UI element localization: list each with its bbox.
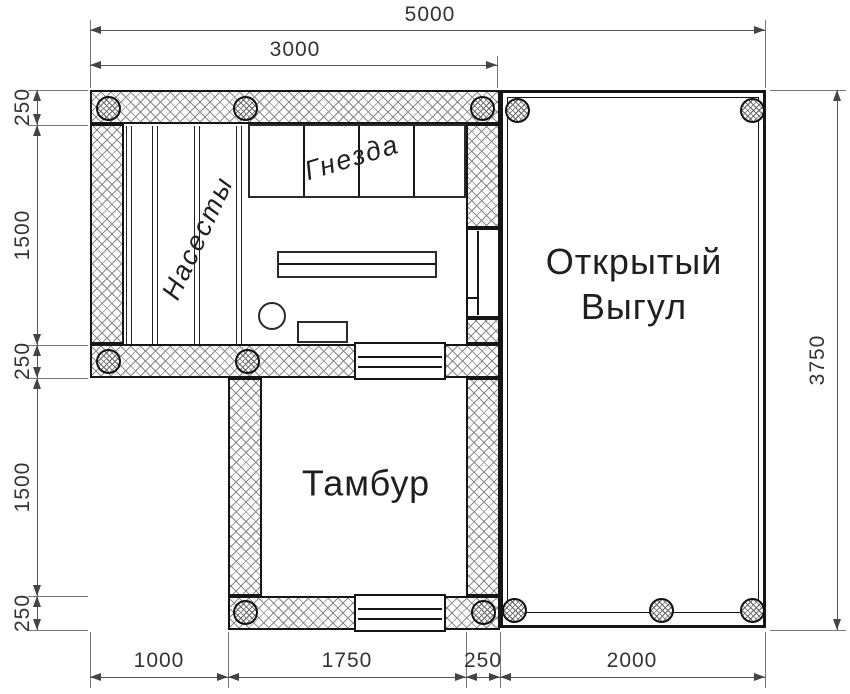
dim-label-top-total: 5000	[405, 3, 456, 27]
drinker	[258, 302, 286, 330]
perch-rail	[236, 126, 242, 344]
vestibule-right-wall	[466, 378, 500, 596]
perch-rail	[126, 126, 132, 344]
dimension-line-3000	[90, 65, 498, 66]
dim-arrow	[90, 61, 101, 69]
vestibule-entry-door-line	[358, 618, 442, 620]
pophole-door	[466, 228, 500, 318]
step-box	[297, 321, 348, 343]
vestibule-left-wall	[228, 378, 262, 596]
coop-right-wall-lower	[466, 318, 500, 344]
wall-post	[233, 600, 258, 625]
floor-plan: Насесты Гнезда Открытый Выгул Тамбур 500…	[0, 0, 850, 694]
wall-post	[96, 96, 121, 121]
dim-label-right-total: 3750	[806, 335, 830, 386]
dim-arrow	[217, 673, 228, 681]
fence-post	[505, 98, 530, 123]
dim-arrow	[455, 673, 466, 681]
open-run-label-line2: Выгул	[546, 284, 723, 329]
dimension-line-5000	[90, 30, 766, 31]
dim-label-top-coop: 3000	[270, 38, 321, 62]
dim-arrow	[228, 673, 239, 681]
pophole-door-leaf	[477, 231, 479, 315]
coop-entry-door-line	[358, 366, 442, 368]
perch-rail	[152, 126, 158, 344]
dim-arrow	[33, 125, 41, 136]
dim-arrow	[489, 673, 500, 681]
fence-post	[649, 598, 674, 623]
run-fence-inner	[507, 97, 759, 613]
dim-label-left-4: 1500	[11, 462, 35, 513]
coop-entry-door-line	[358, 356, 442, 358]
dim-arrow	[500, 673, 511, 681]
dimension-line-left	[37, 90, 38, 630]
dim-label-bottom-1: 1000	[134, 649, 185, 673]
wall-post	[96, 349, 121, 374]
dim-label-left-1: 250	[11, 88, 35, 126]
dim-arrow	[90, 26, 101, 34]
coop-entry-door	[354, 342, 446, 380]
vestibule-label: Тамбур	[302, 461, 430, 506]
vestibule-entry-door	[354, 594, 446, 632]
extension-line	[28, 630, 88, 631]
dim-label-left-3: 250	[11, 342, 35, 380]
coop-left-wall	[90, 124, 124, 344]
dim-label-left-2: 1500	[11, 210, 35, 261]
pophole-door-sill	[468, 297, 479, 299]
dim-arrow	[833, 90, 841, 101]
dimension-line-bottom	[90, 677, 766, 678]
open-run-label: Открытый Выгул	[546, 239, 723, 329]
dim-arrow	[466, 673, 477, 681]
nest-divider	[413, 126, 415, 196]
extension-line	[770, 630, 846, 631]
dimension-line-right	[837, 90, 838, 630]
wall-post	[235, 349, 260, 374]
dim-arrow	[754, 26, 765, 34]
wall-post	[470, 96, 495, 121]
dim-label-bottom-2: 1750	[322, 649, 373, 673]
extension-line	[765, 632, 766, 688]
open-run-label-line1: Открытый	[546, 239, 723, 284]
dim-arrow	[90, 673, 101, 681]
wall-post	[233, 96, 258, 121]
extension-line	[497, 56, 498, 88]
dim-label-bottom-4: 2000	[607, 649, 658, 673]
feeder-divider	[279, 263, 435, 265]
fence-post	[740, 98, 765, 123]
dim-arrow	[754, 673, 765, 681]
vestibule-entry-door-line	[358, 608, 442, 610]
fence-post	[740, 598, 765, 623]
dim-arrow	[486, 61, 497, 69]
coop-right-wall-upper	[466, 124, 500, 228]
wall-post	[471, 600, 496, 625]
dim-arrow	[833, 619, 841, 630]
dim-label-bottom-3: 250	[464, 649, 502, 673]
dim-label-left-5: 250	[11, 594, 35, 632]
fence-post	[502, 598, 527, 623]
coop-top-wall	[90, 90, 500, 124]
